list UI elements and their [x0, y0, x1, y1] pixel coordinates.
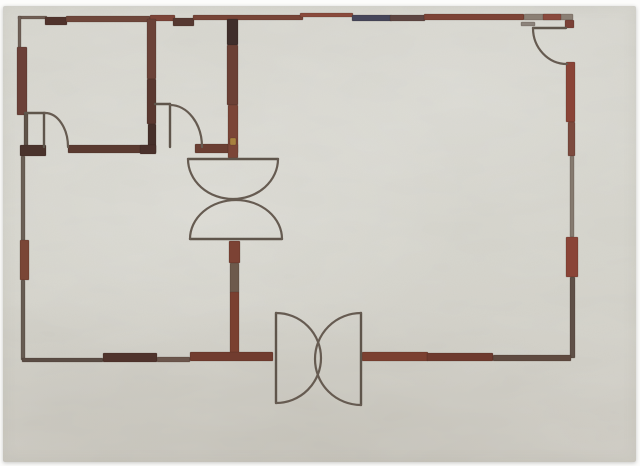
right-wall-corner-stub [565, 20, 574, 28]
interior-wall-2-vertical-top [227, 19, 238, 45]
top-wall-seg-navy [352, 15, 392, 21]
top-wall-seg-1 [18, 16, 47, 19]
top-wall-seg-2 [66, 16, 150, 22]
bottom-wall-thick-red-right [362, 352, 428, 361]
right-wall-thin-lower [570, 277, 575, 358]
room-south-wall-dark-end [140, 145, 156, 154]
right-wall-red-upper [566, 62, 575, 122]
interior-wall-2-vertical-mid [227, 45, 238, 105]
interior-wall-1-vertical-top [147, 19, 156, 79]
interior-wall-2-gold-speck [230, 138, 236, 145]
right-wall-thick-notch [566, 237, 578, 277]
bottom-wall-seg-4 [493, 355, 571, 361]
center-lower-wall-top [229, 241, 240, 263]
interior-wall-2-vertical-bottom [228, 105, 238, 158]
top-wall-seg-4 [193, 15, 303, 20]
top-wall-seg-7 [424, 14, 524, 20]
top-wall-seg-5 [300, 13, 353, 17]
painting-canvas [3, 6, 636, 462]
top-wall-seg-6 [390, 15, 425, 21]
floor-plan [3, 6, 636, 462]
top-wall-step-2 [173, 18, 194, 26]
bottom-wall-thick-dark [103, 353, 157, 362]
right-wall-red-fade [568, 122, 575, 156]
left-wall-bottom-thin [21, 280, 25, 360]
bottom-wall-thick-red-left [190, 352, 273, 361]
left-wall-thick-lower [20, 240, 29, 280]
left-wall-corner-block [20, 145, 46, 156]
left-wall-door-jamb [24, 113, 28, 147]
top-wall-step-1 [45, 17, 67, 25]
bottom-wall-seg-1 [22, 358, 103, 362]
center-lower-wall-mid [230, 263, 239, 293]
interior-wall-1-vertical-mid [147, 79, 156, 124]
bottom-wall-seg-3 [427, 353, 493, 361]
right-wall-thin-mid [570, 156, 574, 237]
bottom-wall-seg-2 [157, 357, 190, 362]
top-wall-step-3 [521, 22, 535, 26]
left-wall-top-thin [18, 16, 21, 50]
left-wall-thick-upper [17, 47, 27, 115]
canvas-texture-grain [3, 6, 636, 462]
top-wall-red-patch [543, 14, 561, 20]
left-wall-mid-thin [21, 156, 25, 242]
center-lower-wall-bottom [230, 292, 239, 358]
